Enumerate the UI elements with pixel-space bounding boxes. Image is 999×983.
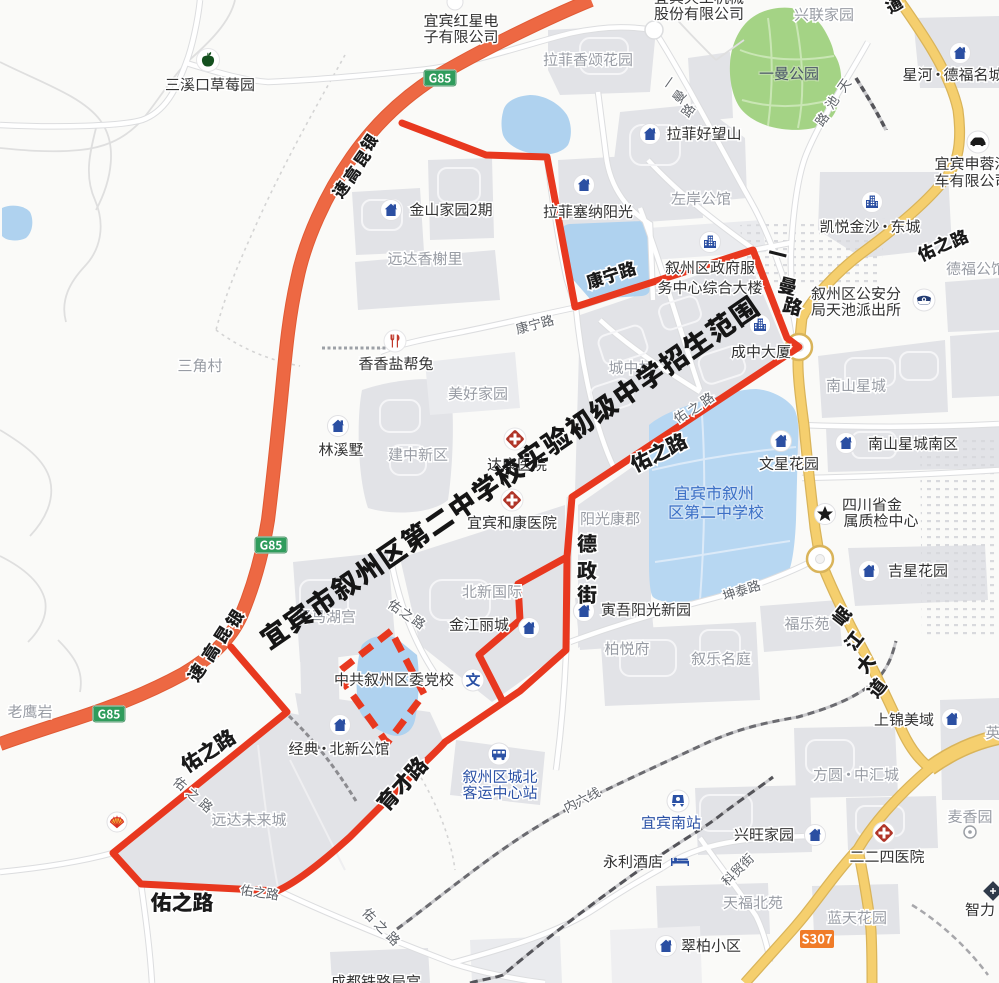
svg-text:凯悦金沙·东城: 凯悦金沙·东城 bbox=[819, 216, 920, 237]
svg-text:G85: G85 bbox=[429, 70, 452, 87]
svg-text:方圆·中汇城: 方圆·中汇城 bbox=[813, 764, 899, 785]
svg-text:德: 德 bbox=[577, 528, 597, 557]
svg-text:左岸公馆: 左岸公馆 bbox=[671, 188, 731, 209]
svg-text:星河·德福名城: 星河·德福名城 bbox=[902, 64, 999, 85]
svg-text:北新国际: 北新国际 bbox=[462, 581, 522, 602]
svg-text:香香盐帮兔: 香香盐帮兔 bbox=[358, 353, 433, 374]
svg-text:兴联家园: 兴联家园 bbox=[794, 4, 854, 25]
svg-text:远达香榭里: 远达香榭里 bbox=[387, 248, 462, 269]
svg-text:德福公馆: 德福公馆 bbox=[946, 258, 999, 279]
svg-text:经典·北新公馆: 经典·北新公馆 bbox=[288, 738, 389, 759]
svg-text:金山家园2期: 金山家园2期 bbox=[409, 199, 492, 220]
svg-text:寅吾阳光新园: 寅吾阳光新园 bbox=[601, 599, 691, 620]
svg-text:智力: 智力 bbox=[965, 899, 995, 920]
svg-text:拉菲塞纳阳光: 拉菲塞纳阳光 bbox=[543, 201, 633, 222]
svg-text:林溪墅: 林溪墅 bbox=[318, 439, 363, 460]
svg-text:宜宾和康医院: 宜宾和康医院 bbox=[467, 512, 557, 533]
svg-text:美好家园: 美好家园 bbox=[448, 383, 508, 404]
svg-text:一曼公园: 一曼公园 bbox=[759, 63, 819, 84]
svg-text:成中大厦: 成中大厦 bbox=[731, 341, 791, 362]
svg-text:翠柏小区: 翠柏小区 bbox=[681, 935, 741, 956]
svg-text:麦香园: 麦香园 bbox=[947, 806, 992, 827]
svg-text:文: 文 bbox=[465, 670, 480, 691]
svg-text:成都铁路局宫: 成都铁路局宫 bbox=[331, 971, 421, 983]
svg-text:南山星城南区: 南山星城南区 bbox=[868, 433, 958, 454]
svg-text:子有限公司: 子有限公司 bbox=[423, 26, 498, 47]
svg-text:街: 街 bbox=[577, 579, 597, 608]
svg-text:G85: G85 bbox=[98, 706, 121, 723]
svg-text:G85: G85 bbox=[260, 537, 283, 554]
svg-text:永利酒店: 永利酒店 bbox=[603, 851, 663, 872]
svg-text:阳光康郡: 阳光康郡 bbox=[580, 508, 640, 529]
svg-text:属质检中心: 属质检中心 bbox=[843, 510, 918, 531]
svg-text:佑之路: 佑之路 bbox=[151, 887, 214, 917]
svg-text:文星花园: 文星花园 bbox=[759, 453, 819, 474]
svg-text:南山星城: 南山星城 bbox=[826, 375, 886, 396]
svg-text:中共叙州区委党校: 中共叙州区委党校 bbox=[334, 669, 454, 690]
svg-text:叙乐名庭: 叙乐名庭 bbox=[691, 648, 751, 669]
svg-text:福乐苑: 福乐苑 bbox=[784, 613, 829, 634]
svg-text:上锦美域: 上锦美域 bbox=[874, 709, 934, 730]
svg-text:三角村: 三角村 bbox=[177, 355, 222, 376]
svg-text:拉菲好望山: 拉菲好望山 bbox=[666, 123, 741, 144]
svg-text:二二四医院: 二二四医院 bbox=[849, 846, 924, 867]
svg-text:客运中心站: 客运中心站 bbox=[462, 782, 537, 803]
svg-text:吉星花园: 吉星花园 bbox=[888, 560, 948, 581]
svg-text:英: 英 bbox=[985, 722, 999, 743]
svg-text:局天池派出所: 局天池派出所 bbox=[811, 299, 901, 320]
svg-text:建中新区: 建中新区 bbox=[388, 444, 448, 465]
svg-text:柏悦府: 柏悦府 bbox=[604, 638, 649, 659]
svg-text:远达未来城: 远达未来城 bbox=[211, 809, 286, 830]
svg-text:宜宾天工机械: 宜宾天工机械 bbox=[654, 0, 744, 8]
svg-text:车有限公司: 车有限公司 bbox=[934, 170, 999, 191]
svg-text:老鹰岩: 老鹰岩 bbox=[7, 701, 52, 722]
svg-text:天福北苑: 天福北苑 bbox=[723, 892, 783, 913]
svg-text:叙州区政府服: 叙州区政府服 bbox=[665, 257, 755, 278]
svg-text:蓝天花园: 蓝天花园 bbox=[827, 907, 887, 928]
svg-text:S307: S307 bbox=[801, 929, 832, 948]
svg-text:兴旺家园: 兴旺家园 bbox=[734, 824, 794, 845]
svg-text:拉菲香颂花园: 拉菲香颂花园 bbox=[543, 49, 633, 70]
svg-text:宜宾南站: 宜宾南站 bbox=[641, 812, 701, 833]
svg-text:区第二中学校: 区第二中学校 bbox=[668, 499, 764, 523]
svg-text:三溪口草莓园: 三溪口草莓园 bbox=[165, 74, 255, 95]
svg-text:金江丽城: 金江丽城 bbox=[449, 614, 509, 635]
